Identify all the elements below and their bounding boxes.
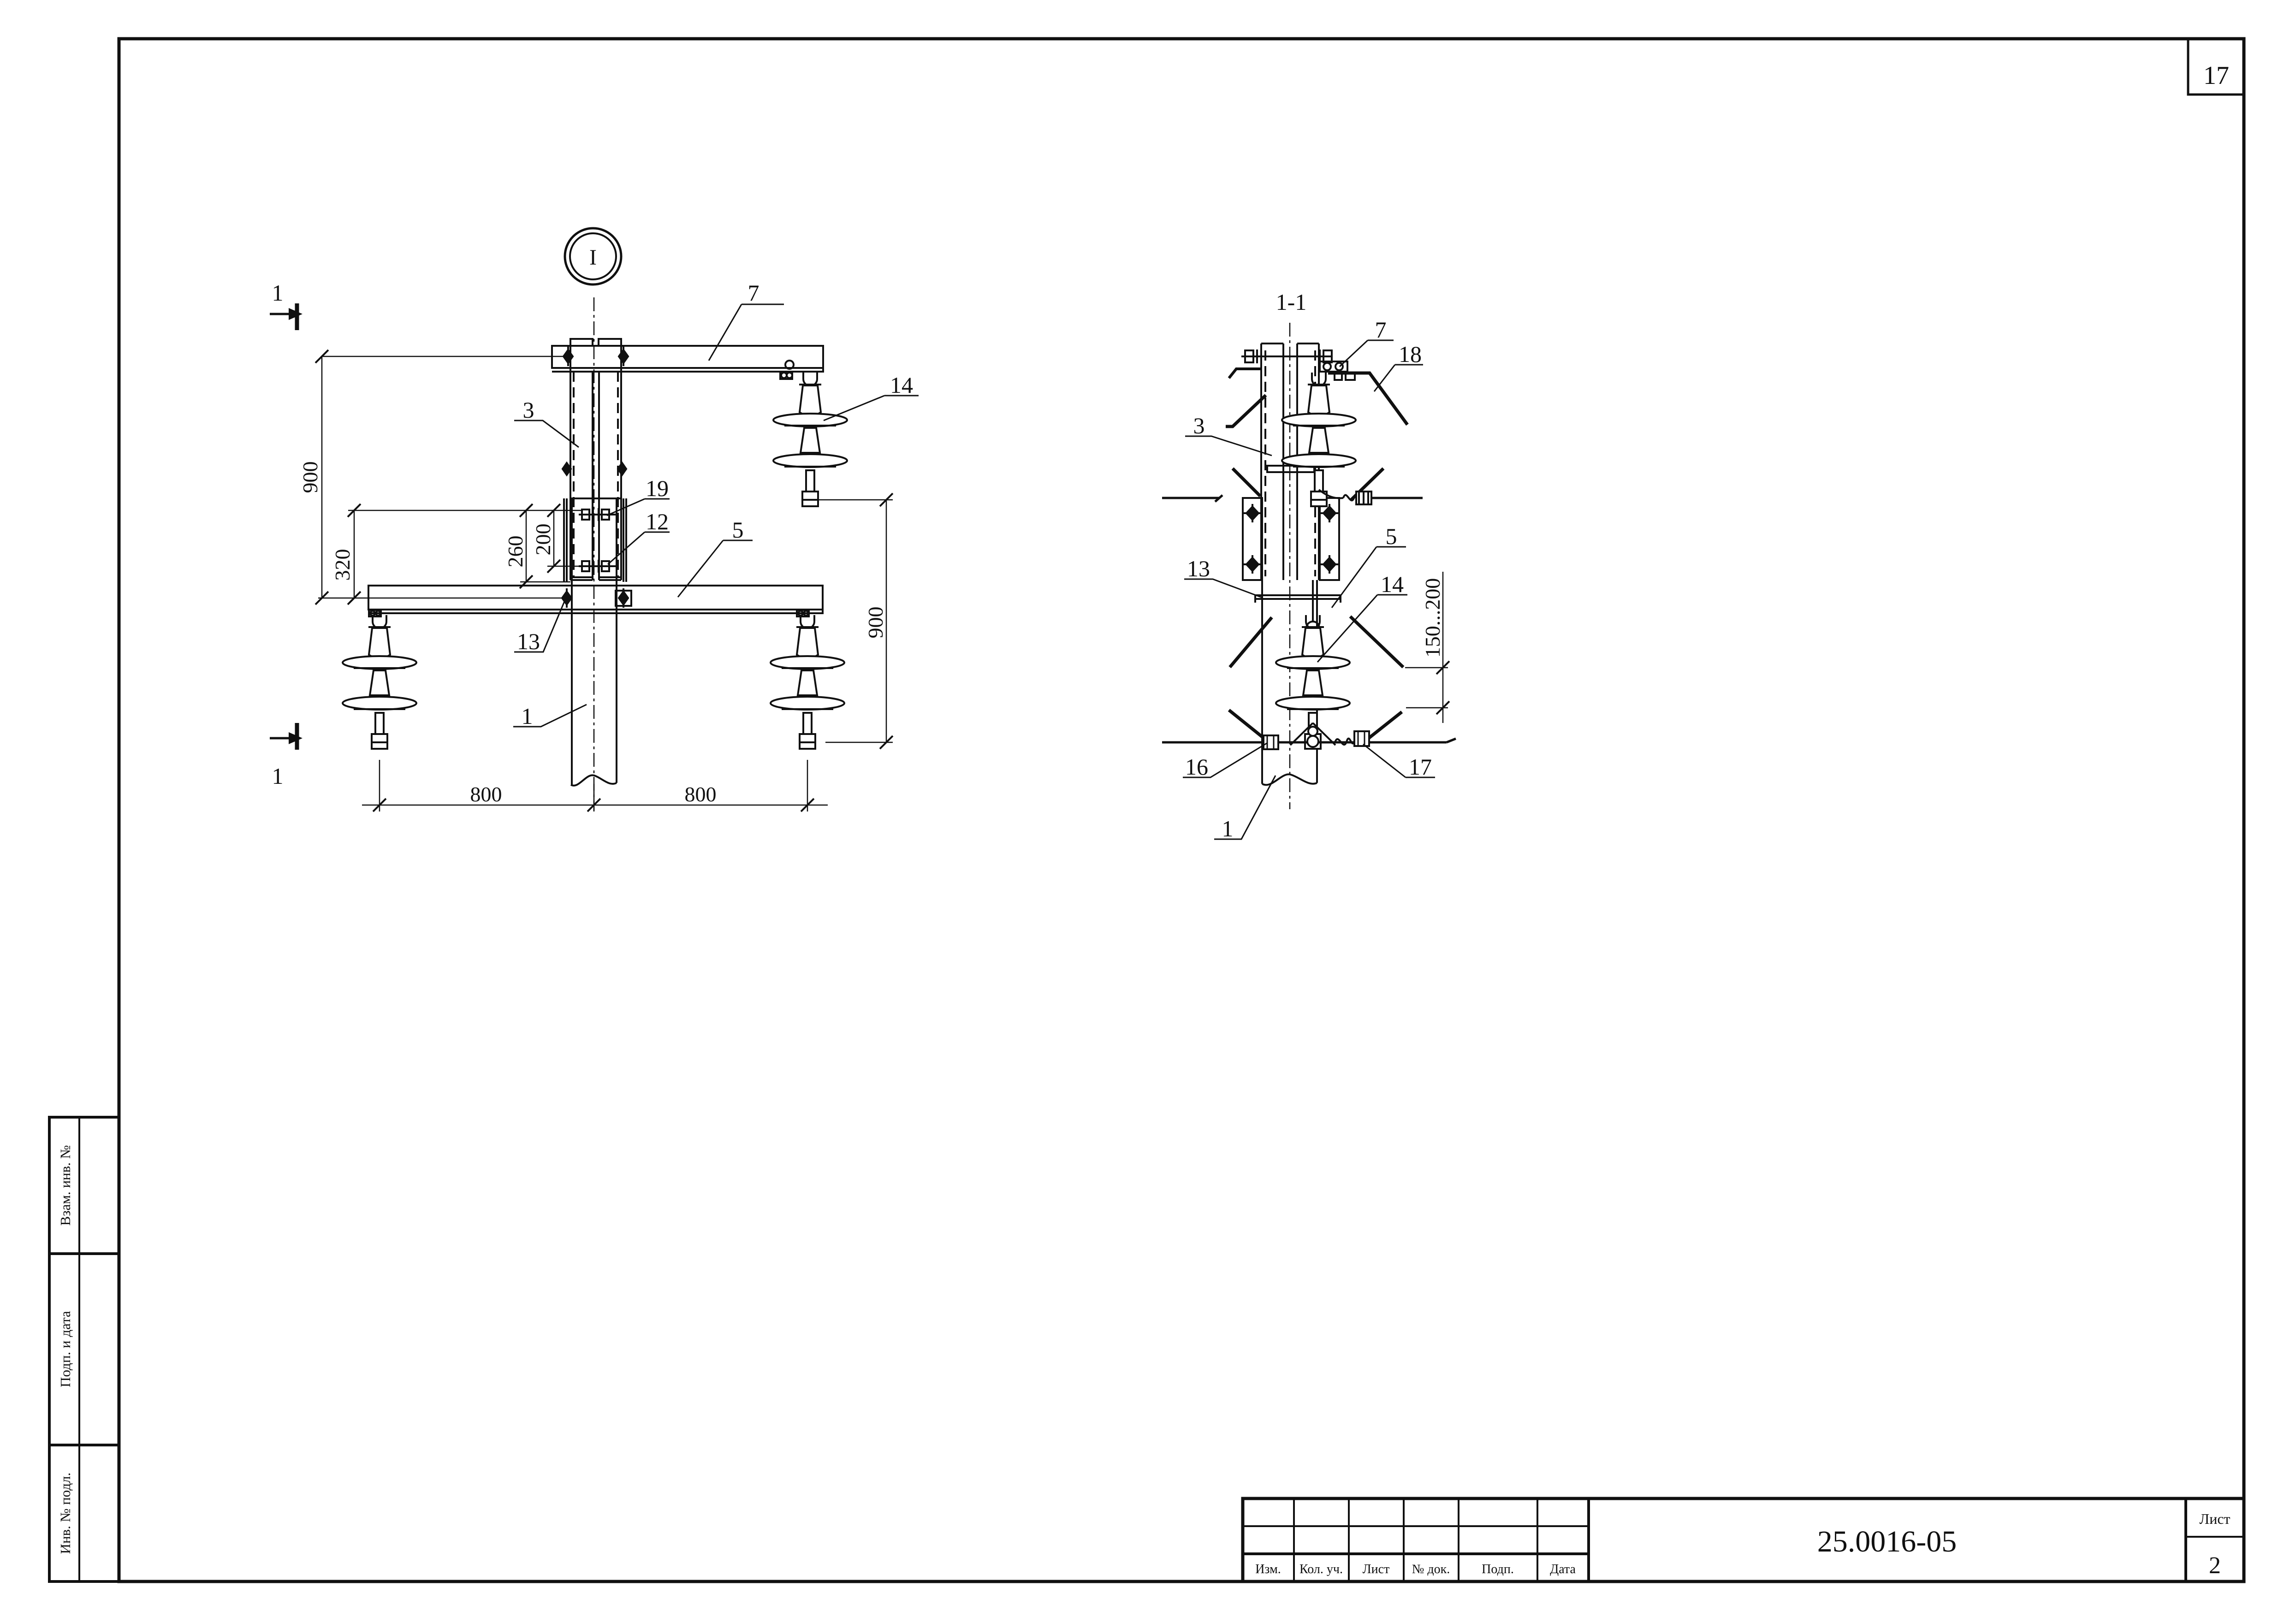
front-insulator-right	[771, 615, 844, 749]
section-callout-labels: 7 18 3 13 5 14 16 17 1	[1185, 317, 1432, 841]
title-col-podp: Подп.	[1482, 1562, 1514, 1576]
title-col-izm: Изм.	[1255, 1562, 1281, 1576]
title-sheet-label: Лист	[2199, 1510, 2230, 1527]
callout-14: 14	[890, 372, 913, 398]
title-sheet-number: 2	[2209, 1552, 2221, 1579]
callout-12: 12	[646, 509, 669, 534]
dim-200: 200	[531, 524, 555, 556]
section-callout-16: 16	[1185, 754, 1208, 780]
title-block-texts: Изм. Кол. уч. Лист № док. Подп. Дата 25.…	[1255, 1510, 2230, 1579]
section-callout-3: 3	[1193, 413, 1205, 438]
title-col-data: Дата	[1550, 1562, 1576, 1576]
section-callout-17: 17	[1409, 754, 1432, 780]
section-insulator-top	[1282, 373, 1356, 506]
callout-1: 1	[522, 703, 533, 729]
dim-260: 260	[504, 536, 527, 568]
section-bolt-symbols	[1243, 504, 1339, 574]
dim-150-200: 150...200	[1421, 578, 1444, 658]
dim-900-right: 900	[864, 607, 887, 639]
front-insulator-top	[773, 373, 847, 506]
side-stamp-row-inv: Инв. № подл.	[57, 1473, 73, 1554]
side-stamp-row-podp: Подп. и дата	[57, 1311, 73, 1387]
title-col-dok: № док.	[1412, 1562, 1450, 1576]
section-callout-7: 7	[1375, 317, 1387, 343]
front-callout-labels: 7 3 19 12 5 13 1 14	[517, 280, 913, 729]
front-view: I 1 1	[270, 228, 919, 811]
section-title: 1-1	[1276, 289, 1307, 315]
sheet-frame	[119, 39, 2244, 1581]
section-cut-bottom-label: 1	[272, 763, 284, 789]
callout-5: 5	[732, 517, 744, 543]
sheet-corner-number-label: 17	[2203, 61, 2229, 90]
section-callout-14: 14	[1381, 571, 1404, 597]
callout-13: 13	[517, 628, 540, 654]
front-structure	[368, 339, 824, 786]
section-cut-top-label: 1	[272, 280, 284, 306]
callout-19: 19	[646, 475, 669, 501]
callout-3: 3	[523, 397, 534, 423]
front-insulator-left	[343, 615, 416, 749]
callout-7: 7	[748, 280, 759, 306]
section-cut-top	[270, 303, 303, 330]
section-cut-bottom	[270, 723, 303, 750]
section-view: 1-1	[1162, 289, 1456, 841]
side-stamp-row-vzam: Взам. инв. №	[57, 1145, 73, 1226]
title-col-list: Лист	[1363, 1562, 1390, 1576]
dim-320: 320	[331, 549, 354, 581]
dim-900-left: 900	[298, 462, 322, 493]
title-col-kol: Кол. уч.	[1299, 1562, 1343, 1576]
detail-marker-label: I	[589, 245, 597, 270]
side-stamp-labels: Взам. инв. № Подп. и дата Инв. № подл.	[57, 1145, 73, 1554]
dim-800-right: 800	[685, 782, 717, 806]
section-callout-18: 18	[1399, 341, 1422, 367]
section-callout-1: 1	[1222, 816, 1234, 841]
title-doc-number: 25.0016-05	[1817, 1525, 1957, 1558]
title-block	[1243, 1498, 2244, 1581]
dim-800-left: 800	[470, 782, 502, 806]
section-callout-5: 5	[1386, 523, 1397, 549]
sheet-corner-number: 17	[2203, 61, 2229, 90]
section-callout-13: 13	[1187, 556, 1210, 581]
